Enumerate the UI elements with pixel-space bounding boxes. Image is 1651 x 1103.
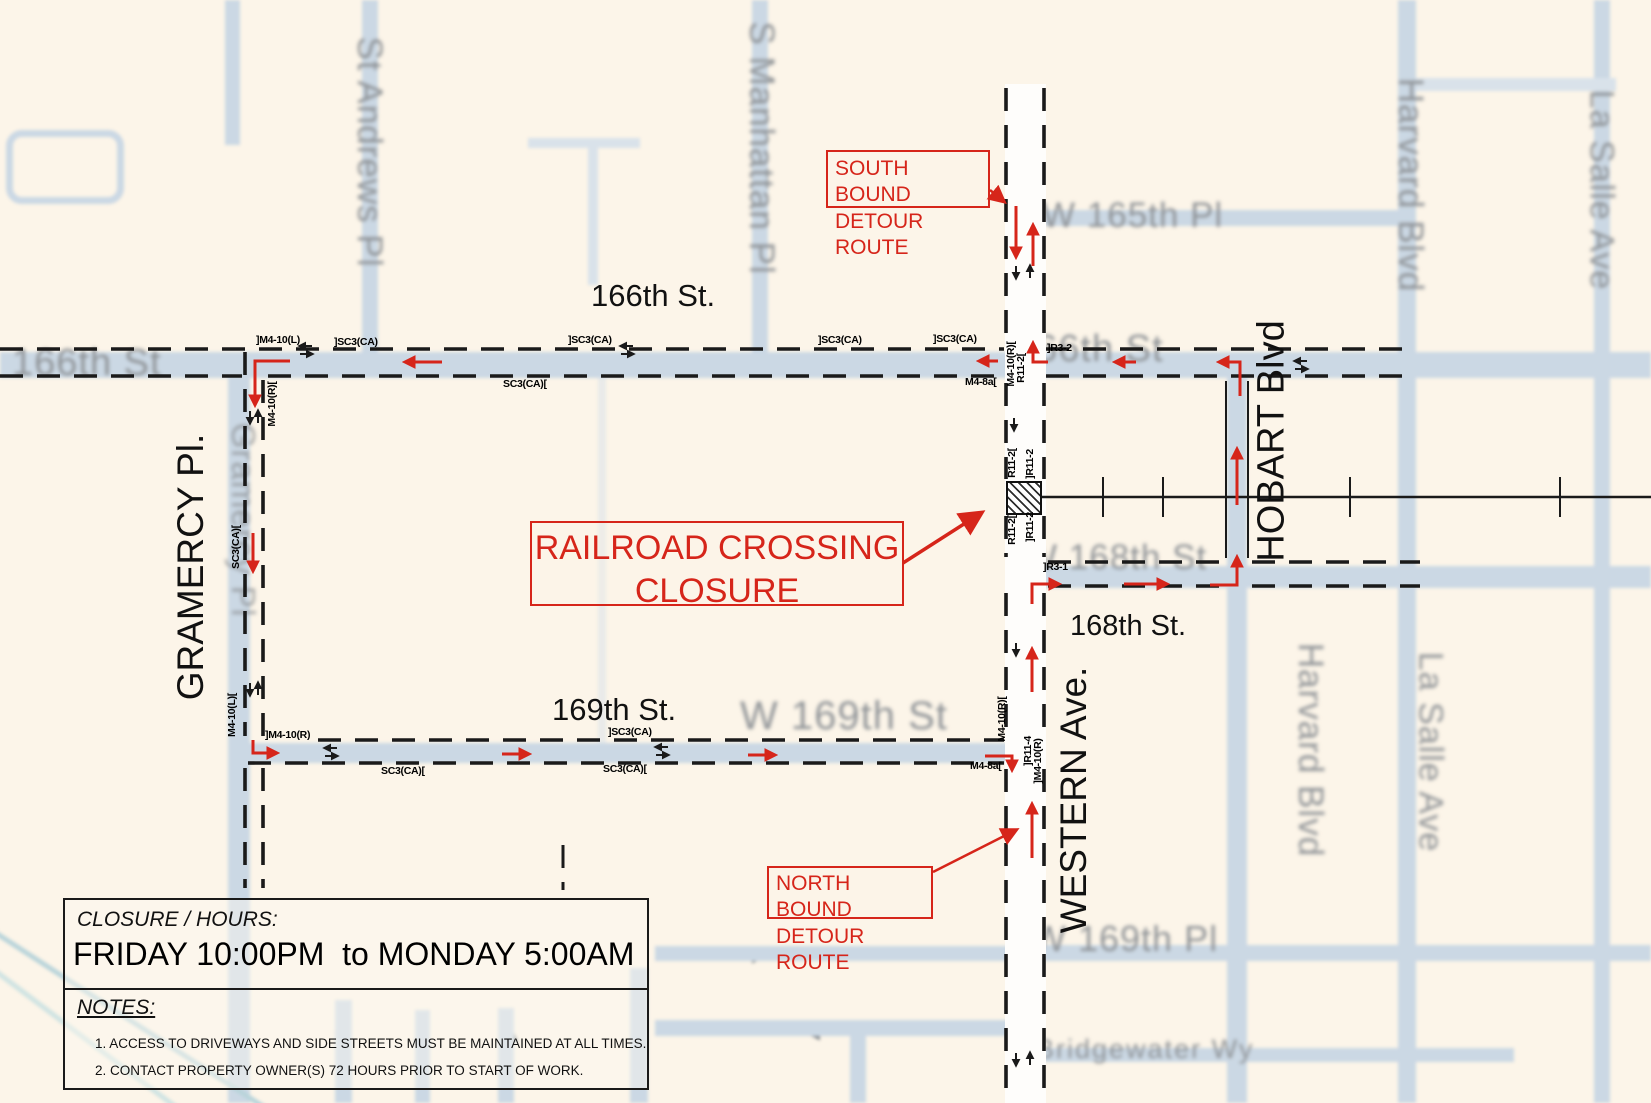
sign-m4-8a: M4-8a[ — [965, 376, 996, 388]
closure-hours-value: FRIDAY 10:00PM to MONDAY 5:00AM — [73, 936, 634, 973]
railroad-track — [1042, 477, 1651, 517]
sign-sc3ca: ]SC3(CA) — [608, 726, 652, 738]
callout-south-line2: DETOUR ROUTE — [835, 209, 988, 262]
sign-m4-10r: ]M4-10(R) — [265, 729, 310, 741]
sign-sc3ca: SC3(CA)[ — [230, 525, 242, 569]
street-label-168th: 168th St. — [1070, 610, 1186, 643]
street-label-gramercy: GRAMERCY Pl. — [170, 434, 212, 701]
sign-r11-2: ]R11-2 — [1024, 512, 1036, 542]
street-label-hobart: HOBART Blvd — [1251, 320, 1294, 561]
callout-south-bound: SOUTH BOUND DETOUR ROUTE — [826, 150, 990, 208]
sign-m4-10r: M4-10(R)[ — [266, 381, 278, 426]
sign-r11-2: ]R11-2 — [1024, 449, 1036, 479]
note-2: 2. CONTACT PROPERTY OWNER(S) 72 HOURS PR… — [95, 1063, 583, 1078]
street-label-166th: 166th St. — [591, 278, 715, 314]
sign-r11-2: R11-2[ — [1015, 353, 1027, 383]
traffic-control-plan: St Andrews Pl S Manhattan Pl W 165th Pl … — [0, 0, 1651, 1103]
callout-north-bound: NORTH BOUND DETOUR ROUTE — [767, 866, 933, 919]
callout-railroad-closure: RAILROAD CROSSING CLOSURE — [530, 521, 904, 606]
sign-r11-2: R11-2[ — [1006, 448, 1018, 478]
sign-m4-10r: M4-10(R)[ — [996, 696, 1008, 741]
callout-railroad-line1: RAILROAD CROSSING — [532, 527, 902, 570]
sign-sc3ca: ]SC3(CA) — [568, 334, 612, 346]
sign-sc3ca: SC3(CA)[ — [503, 378, 547, 390]
street-label-western: WESTERN Ave. — [1053, 667, 1095, 934]
closure-info-box: CLOSURE / HOURS: FRIDAY 10:00PM to MONDA… — [63, 898, 649, 1090]
sign-m4-10l: M4-10(L)[ — [226, 693, 238, 737]
note-1: 1. ACCESS TO DRIVEWAYS AND SIDE STREETS … — [95, 1036, 646, 1051]
notes-label: NOTES: — [77, 996, 155, 1020]
sign-m4-10l: ]M4-10(L) — [256, 334, 300, 346]
sign-r3-1: ]R3-1 — [1043, 561, 1068, 573]
info-box-divider — [65, 988, 647, 990]
callout-south-line1: SOUTH BOUND — [835, 156, 988, 209]
sign-sc3ca: ]SC3(CA) — [933, 333, 977, 345]
sign-sc3ca: ]SC3(CA) — [818, 334, 862, 346]
sign-m4-10r: ]M4-10(R) — [1032, 738, 1044, 783]
sign-sc3ca: ]SC3(CA) — [334, 336, 378, 348]
sign-r3-2: ]R3-2 — [1047, 342, 1072, 354]
callout-north-line2: DETOUR ROUTE — [776, 924, 931, 977]
sign-sc3ca: SC3(CA)[ — [381, 765, 425, 777]
street-label-169th: 169th St. — [552, 692, 676, 728]
sign-m4-8a: M4-8a[ — [970, 760, 1001, 772]
callout-railroad-line2: CLOSURE — [532, 570, 902, 613]
sign-r11-2: R11-2[ — [1006, 515, 1018, 545]
closure-hours-label: CLOSURE / HOURS: — [77, 908, 278, 932]
sign-sc3ca: SC3(CA)[ — [603, 763, 647, 775]
callout-north-line1: NORTH BOUND — [776, 871, 931, 924]
